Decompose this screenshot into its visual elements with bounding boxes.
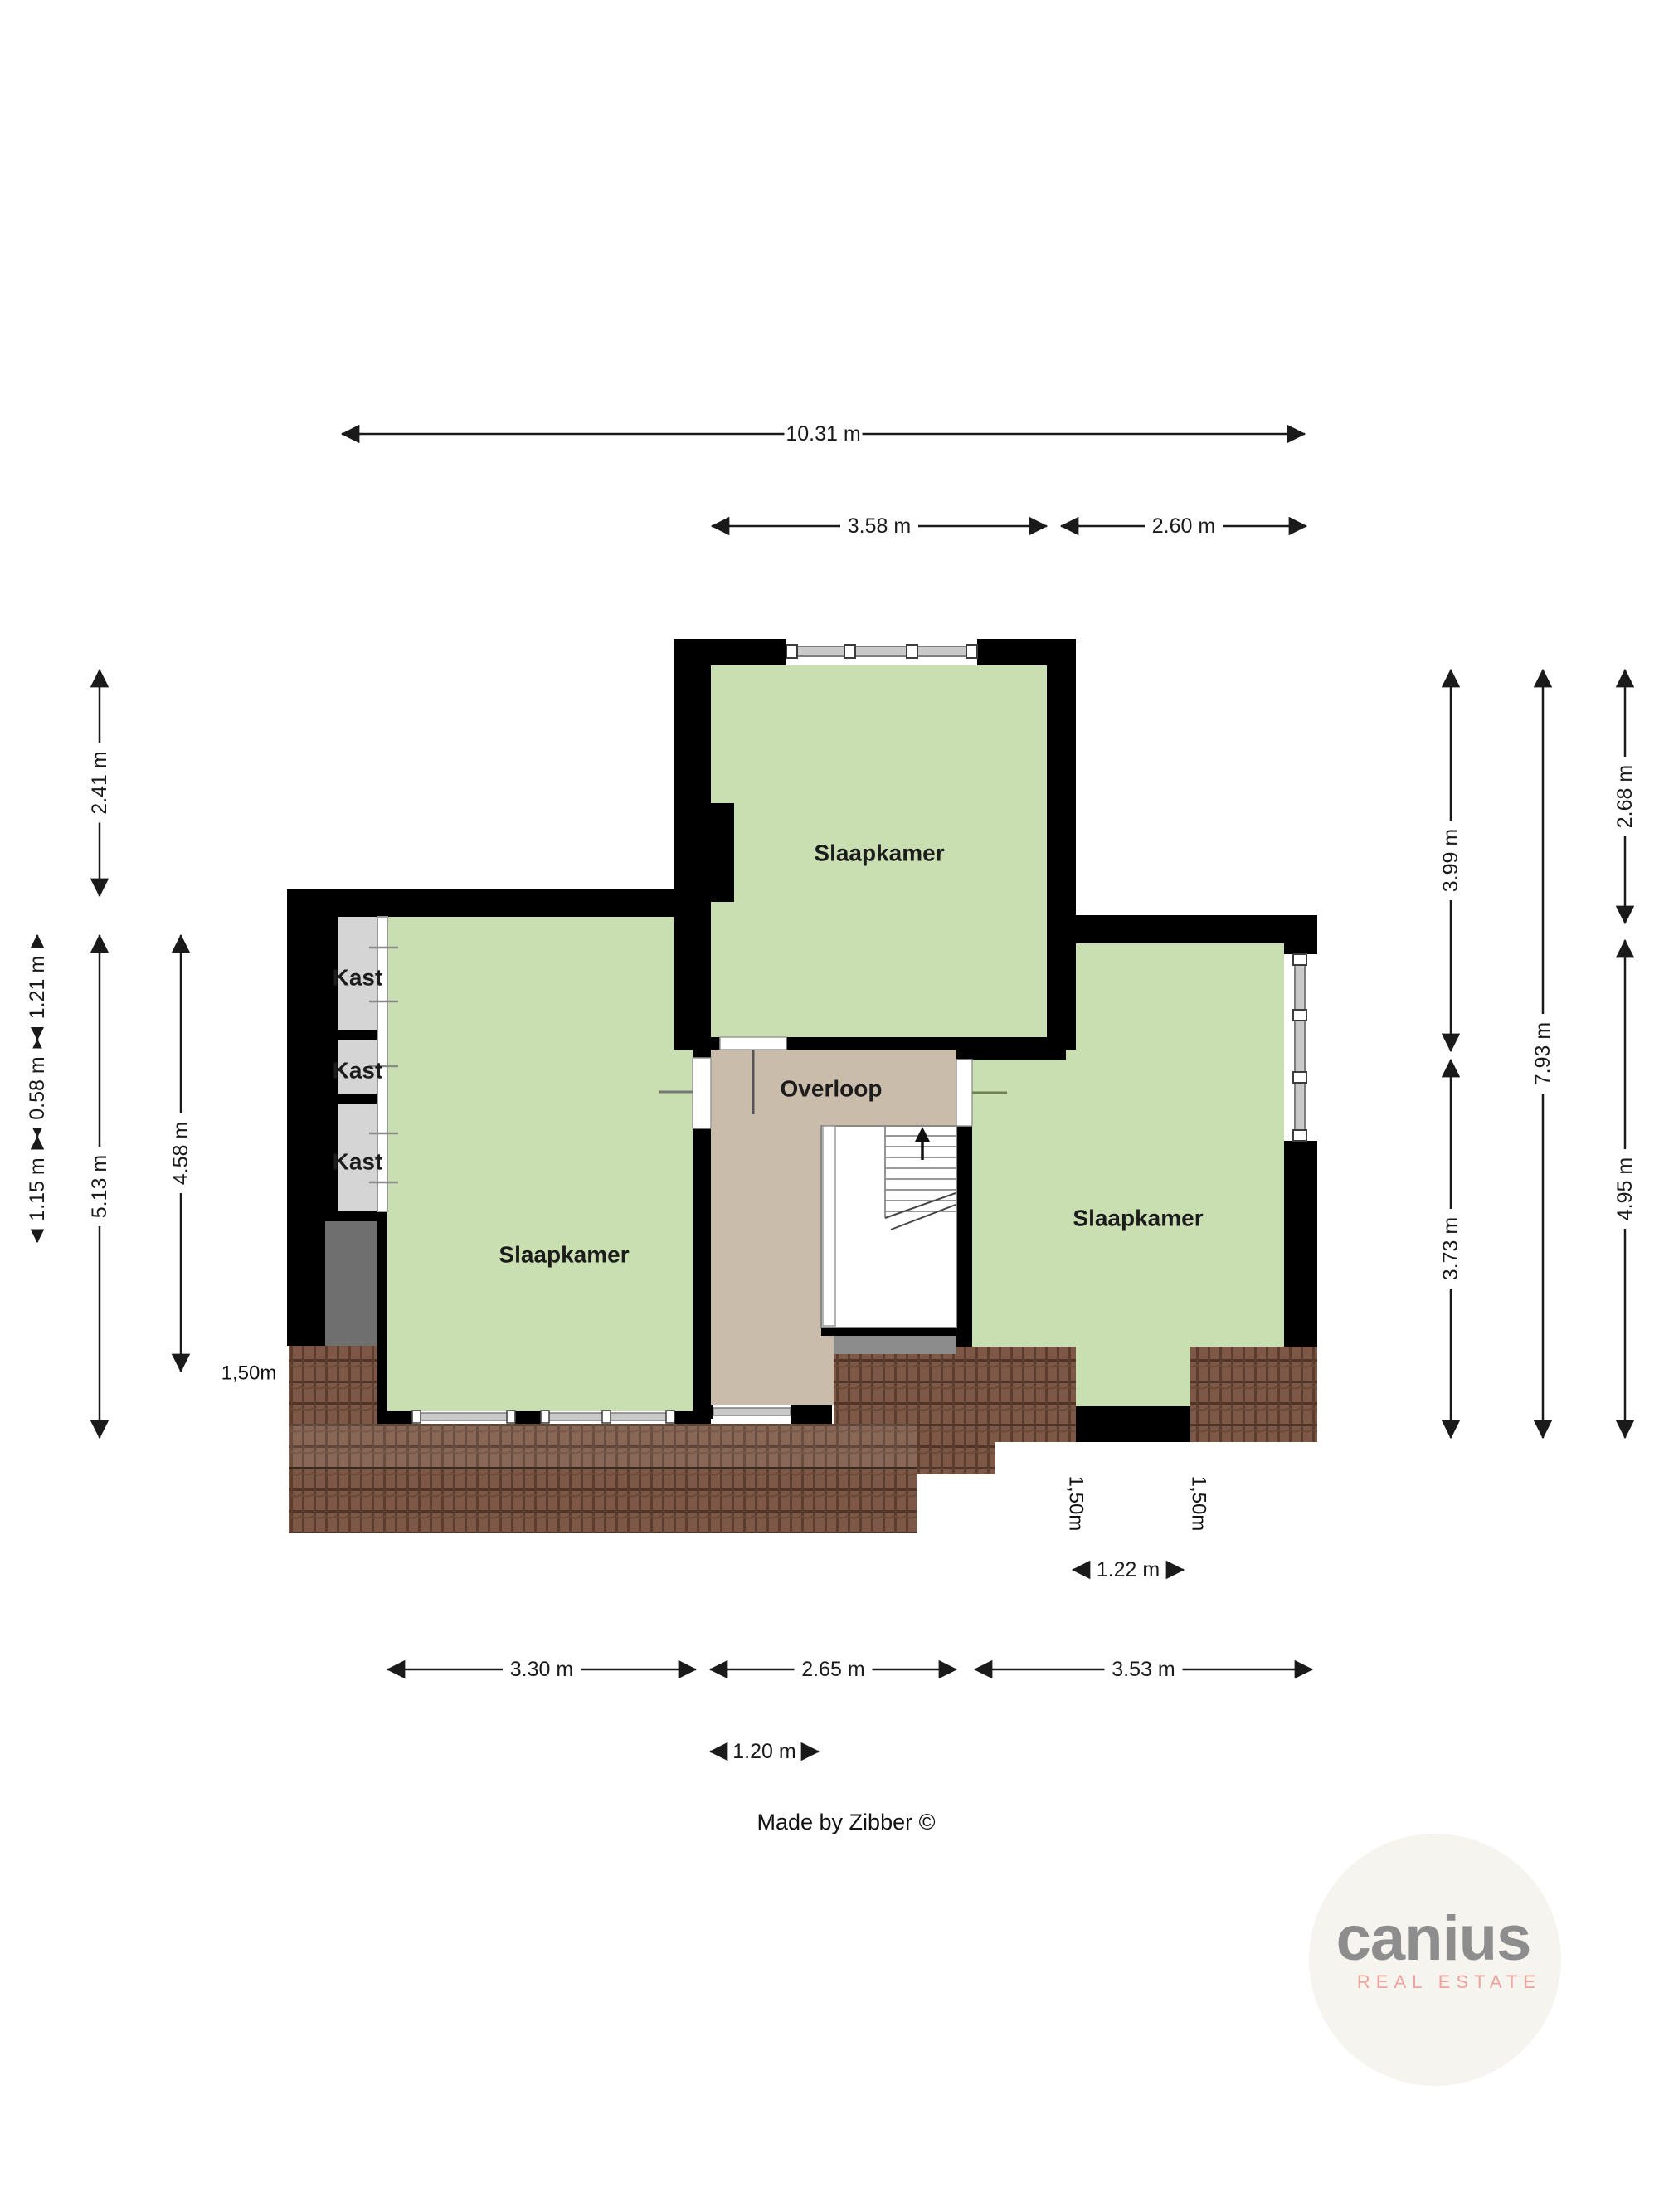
dimension-label: 3.30 m	[510, 1658, 573, 1681]
dimension-label: 2.41 m	[88, 751, 111, 814]
dimension-label: 2.60 m	[1152, 514, 1215, 538]
roof-annotation: 1,50m	[221, 1362, 277, 1385]
window-landing-glazing	[713, 1408, 791, 1415]
roof-right-bedroom-east	[1190, 1347, 1317, 1442]
room-label: Slaapkamer	[1073, 1206, 1203, 1231]
dimension-label: 4.95 m	[1613, 1157, 1637, 1220]
wall-right-bedroom-north	[1047, 915, 1317, 943]
wall-right-bedroom-east-lower	[1284, 1141, 1317, 1347]
logo-brand: canius	[1336, 1903, 1531, 1974]
room-label: Kast	[333, 1058, 383, 1084]
dimension-label: 2.65 m	[801, 1658, 864, 1681]
wall-notch	[711, 803, 734, 902]
door-top-bedroom-frame	[720, 1037, 786, 1050]
dimension-label: 1.22 m	[1097, 1558, 1160, 1581]
roof-annotation: 1,50m	[1188, 1476, 1210, 1532]
dimension-label: 3.73 m	[1439, 1217, 1462, 1280]
bedroom-right-floor-south	[1076, 1347, 1190, 1406]
door-left-bedroom-frame	[693, 1058, 711, 1128]
wall-left-section-north	[287, 889, 711, 917]
dimension-label: 1.20 m	[732, 1740, 795, 1763]
bedroom-right-floor-main	[1076, 943, 1284, 1347]
dimension-label: 7.93 m	[1531, 1022, 1554, 1085]
roof-annotation: 1,50m	[1065, 1476, 1087, 1532]
room-label: Slaapkamer	[499, 1242, 629, 1268]
floorplan-drawing: 10.31 m3.58 m2.60 m2.41 m1.21 m0.58 m1.1…	[0, 0, 1659, 2212]
wall-right-bedroom-south-mid	[1076, 1406, 1190, 1442]
credit-text: Made by Zibber ©	[757, 1810, 936, 1834]
roof-under-stairs	[834, 1354, 956, 1424]
dimension-label: 1.21 m	[26, 956, 49, 1019]
stairs-stringer	[823, 1126, 835, 1326]
bedroom-left-floor	[387, 917, 693, 1411]
window-top-glazing	[786, 646, 977, 656]
roof-band-seam	[289, 1467, 917, 1469]
dimension-label: 3.58 m	[848, 514, 911, 538]
staircase	[821, 1126, 956, 1328]
stairs-box	[821, 1126, 956, 1328]
roof-right-bedroom-west	[956, 1347, 1076, 1442]
logo-tagline: REAL ESTATE	[1357, 1971, 1541, 1992]
floorplan-canvas: 10.31 m3.58 m2.60 m2.41 m1.21 m0.58 m1.1…	[0, 0, 1659, 2212]
wall-left-outer-upper	[287, 889, 338, 1221]
wall-landing-ne-stub	[956, 1037, 1066, 1060]
under-stairs-gray	[834, 1336, 956, 1354]
roof-band-highlight	[289, 1424, 917, 1469]
void-area	[325, 1221, 377, 1346]
room-label: Slaapkamer	[814, 840, 944, 866]
dimension-label: 10.31 m	[786, 422, 860, 446]
dimension-label: 4.58 m	[169, 1122, 192, 1185]
bedroom-right-floor-west	[972, 1050, 1076, 1347]
roof-left-strip	[289, 1346, 377, 1424]
logo: canius REAL ESTATE	[1309, 1834, 1561, 2086]
window-lb1-glazing	[412, 1413, 515, 1420]
wall-closet-strip-south	[377, 1221, 387, 1424]
dimension-label: 3.99 m	[1439, 829, 1462, 892]
wall-left-outer-lower	[287, 1221, 325, 1346]
dimension-label: 2.68 m	[1613, 765, 1637, 828]
window-rb-glazing	[1295, 954, 1305, 1141]
wall-closet-div3	[338, 1211, 387, 1221]
room-label: Overloop	[781, 1076, 883, 1102]
dimension-label: 0.58 m	[26, 1056, 49, 1119]
room-label: Kast	[333, 1149, 383, 1175]
dimension-label: 1.15 m	[26, 1157, 49, 1220]
door-right-bedroom-frame	[956, 1060, 972, 1126]
wall-top-bedroom-east	[1047, 639, 1076, 1050]
room-label: Kast	[333, 965, 383, 991]
dimension-label: 3.53 m	[1112, 1658, 1175, 1681]
wall-right-bedroom-east-upper	[1284, 915, 1317, 954]
dimension-label: 5.13 m	[88, 1155, 111, 1218]
wall-top-bedroom-west	[674, 639, 711, 1050]
annotations-layer: 10.31 m3.58 m2.60 m2.41 m1.21 m0.58 m1.1…	[24, 421, 1638, 1763]
